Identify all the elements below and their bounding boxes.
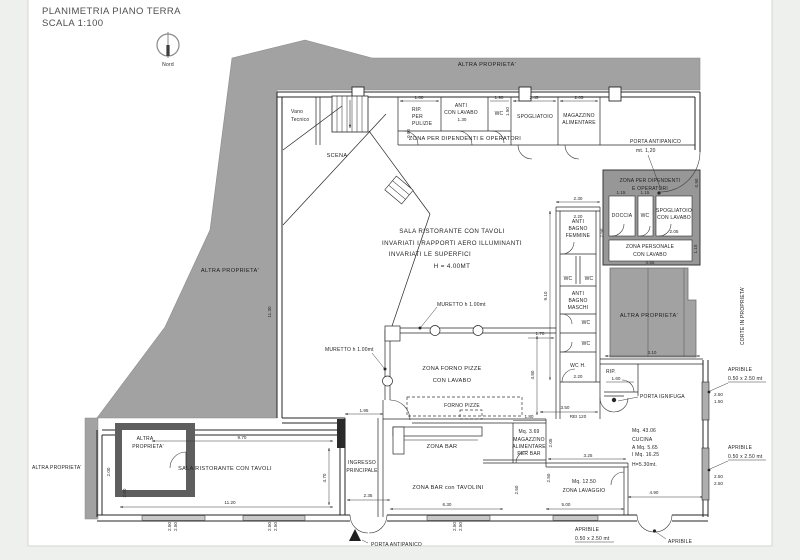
window-right-2	[702, 448, 709, 500]
dim-magbar-h: 2.05	[548, 438, 553, 447]
label-wc-top: WC	[495, 111, 504, 117]
compass-label: Nord	[162, 62, 174, 68]
porta-antipanico-dx-dot	[657, 191, 660, 194]
label-wc-m1: WC	[582, 320, 591, 326]
dim-wc: 1.90	[495, 95, 504, 100]
label-anti-bagno-femmine: ANTI	[572, 219, 584, 225]
label-ingresso: INGRESSO	[348, 460, 376, 466]
label-porta-antipanico-dx: PORTA ANTIPANICO	[630, 139, 681, 145]
label-magbar-3: PER BAR	[517, 451, 541, 457]
dim-w1b: 2.50	[173, 522, 178, 531]
dim-wch: 2.20	[574, 374, 583, 379]
svg-text:0.50 x 2.50 mt: 0.50 x 2.50 mt	[728, 454, 763, 460]
label-spogliatoio: SPOGLIATOIO	[517, 114, 553, 120]
dim-spog: 2.45	[530, 95, 539, 100]
dim-dx2b: 2.50	[714, 481, 723, 486]
label-forno-pizze: FORNO PIZZE	[444, 403, 480, 409]
dim-doccia: 1.15	[617, 190, 626, 195]
dim-dx2a: 2.50	[714, 474, 723, 479]
label-cucina-h: H=5.30mt.	[632, 462, 657, 468]
svg-text:APRIBILE: APRIBILE	[575, 527, 600, 533]
dim-sala-top: 9.70	[238, 435, 247, 440]
dim-box-h: 2.00	[122, 488, 127, 497]
label-vano-tecnico-2: Tecnico	[291, 117, 309, 123]
label-magazzino-alimentare-2: ALIMENTARE	[562, 120, 596, 126]
label-box-altra: ALTRA	[137, 436, 154, 442]
dim-personale-h: 1.15	[693, 244, 698, 253]
dim-forno-h: 4.80	[530, 370, 535, 379]
dim-dx1b: 1.50	[714, 399, 723, 404]
dim-sala-dx: 4.70	[322, 473, 327, 482]
label-altra-left-small: ALTRA PROPRIETA'	[32, 465, 82, 471]
label-sala-centrale-4: H = 4.00MT	[434, 263, 471, 270]
label-blocco-dipendenti-2: E OPERATORI	[632, 186, 668, 192]
label-magazzino-alimentare: MAGAZZINO	[563, 113, 595, 119]
label-cucina-a: A Mq. 5.65	[632, 445, 658, 451]
label-rei-120: REI 120	[570, 414, 587, 419]
dim-muro-sx: 11.30	[267, 306, 272, 318]
label-anti-bagno-femmine-2: BAGNO	[568, 226, 587, 232]
label-magbar-2: ALIMENTARE	[512, 444, 546, 450]
label-zona-personale-2: CON LAVABO	[633, 252, 667, 258]
label-anti-bagno-maschi-2: BAGNO	[568, 298, 587, 304]
floor-plan-drawing: PLANIMETRIA PIANO TERRA SCALA 1:100 Nord…	[0, 0, 800, 560]
label-sala-sx: SALA RISTORANTE CON TAVOLI	[178, 466, 272, 472]
label-cucina-i: I Mq. 16.25	[632, 452, 659, 458]
column-3	[383, 376, 393, 386]
label-altra-right: ALTRA PROPRIETA'	[620, 313, 678, 319]
column-1	[430, 326, 440, 336]
dim-sala-sx-h: 2.00	[106, 467, 111, 476]
dim-sala-bottom: 11.20	[224, 500, 236, 505]
label-box-altra-2: PROPRIETA'	[132, 444, 163, 450]
dim-w2b: 2.50	[273, 522, 278, 531]
dim-w2a: 2.50	[267, 522, 272, 531]
dim-ingresso-porta: 2.35	[364, 493, 373, 498]
label-doccia: DOCCIA	[612, 213, 633, 219]
column-2	[473, 326, 483, 336]
label-magbar: MAGAZZINO	[513, 437, 545, 443]
label-sala-centrale-2: INVARIATI I RAPPORTI AERO ILLUMINANTI	[382, 240, 522, 247]
dim-anti: 1.30	[458, 117, 467, 122]
label-wc-h: WC H.	[570, 363, 586, 369]
label-zona-bar: ZONA BAR	[427, 444, 458, 450]
dim-lav-sx: 2.50	[546, 473, 551, 482]
label-lavaggio-mq: Mq. 12.50	[572, 479, 596, 485]
window-right-1	[702, 382, 709, 420]
label-sala-centrale-3: INVARIATI LE SUPERFICI	[389, 251, 471, 258]
label-zona-personale: ZONA PERSONALE	[626, 244, 675, 250]
dim-w3a: 2.50	[452, 522, 457, 531]
plan-title: PLANIMETRIA PIANO TERRA	[42, 6, 181, 17]
label-apribile-4: APRIBILE	[668, 539, 693, 545]
label-rip2: RIP.	[606, 369, 616, 375]
label-spogliatoio-lavabo-2: CON LAVABO	[657, 215, 691, 221]
dim-magbar-w: 1.80	[525, 414, 534, 419]
area-altra-proprieta-left-strip	[85, 418, 98, 519]
label-sala-centrale: SALA RISTORANTE CON TAVOLI	[399, 228, 505, 235]
label-lavaggio: ZONA LAVAGGIO	[563, 488, 606, 494]
box-altra-proprieta	[115, 423, 195, 497]
label-anti-bagno-maschi: ANTI	[572, 291, 584, 297]
label-spogliatoio-lavabo: SPOGLIATOIO	[656, 208, 692, 214]
floor-plan-page: PLANIMETRIA PIANO TERRA SCALA 1:100 Nord…	[0, 0, 800, 560]
dim-ingresso-top: 1.95	[360, 408, 369, 413]
label-rip-pulizie-2: PER	[412, 114, 423, 120]
dim-rip2: 1.60	[612, 376, 621, 381]
dim-corridoio-h: 0.90	[406, 129, 411, 138]
dim-spog-h: 1.50	[505, 107, 510, 116]
dim-disimp: 1.70	[536, 331, 545, 336]
dim-bagni-1: 2.30	[574, 196, 583, 201]
label-porta-ignifuga: PORTA IGNIFUGA	[640, 394, 685, 400]
label-cucina: CUCINA	[632, 437, 653, 443]
dim-blocco-h: 0.90	[694, 178, 699, 187]
label-vano-tecnico: Vano	[291, 109, 303, 115]
label-wc-m2: WC	[582, 341, 591, 347]
label-zona-forno: ZONA FORNO PIZZE	[422, 366, 481, 372]
label-porta-antipanico-dx-2: mt. 1,20	[636, 148, 656, 154]
label-zona-forno-2: CON LAVABO	[433, 378, 472, 384]
dim-personale: 4.55	[646, 260, 655, 265]
svg-text:APRIBILE: APRIBILE	[728, 367, 753, 373]
dim-tavolini: 6.30	[443, 502, 452, 507]
label-rip-pulizie-3: PULIZIE	[412, 121, 433, 127]
dim-bagni-2: 2.20	[574, 214, 583, 219]
svg-text:APRIBILE: APRIBILE	[728, 445, 753, 451]
label-altra-top: ALTRA PROPRIETA'	[458, 62, 516, 68]
plan-scale: SCALA 1:100	[42, 18, 103, 29]
label-rip-pulizie: RIP.	[412, 107, 422, 113]
dim-lav-bottom: 5.00	[562, 502, 571, 507]
dim-w3b: 2.50	[458, 522, 463, 531]
label-wc-f1: WC	[564, 276, 573, 282]
label-ingresso-2: PRINCIPALE	[346, 468, 378, 474]
label-blocco-dipendenti: ZONA PER DIPENDENTI	[620, 178, 681, 184]
dim-rip: 1.80	[415, 95, 424, 100]
label-wc-f2: WC	[585, 276, 594, 282]
label-anti-bagno-femmine-3: FEMMINE	[566, 233, 591, 239]
dim-mag: 2.05	[575, 95, 584, 100]
label-muretto-2: MURETTO h 1.00mt	[325, 347, 374, 353]
dim-bagni-h: 9.10	[543, 291, 548, 300]
dim-wc-blocco: 1.15	[641, 190, 650, 195]
label-anti-bagno-maschi-3: MASCHI	[568, 305, 589, 311]
dim-dx1a: 2.50	[714, 392, 723, 397]
label-magbar-mq: Mq. 3.69	[518, 429, 539, 435]
label-bar-tavolini: ZONA BAR con TAVOLINI	[412, 485, 483, 491]
dim-cucina-top: 3.10	[648, 350, 657, 355]
stairs	[332, 96, 368, 132]
label-anti-con-lavabo-2: CON LAVABO	[444, 110, 478, 116]
label-muretto-1: MURETTO h 1.00mt	[437, 302, 486, 308]
dim-spog2: 2.05	[670, 229, 679, 234]
label-altra-left: ALTRA PROPRIETA'	[201, 268, 259, 274]
label-anti-con-lavabo: ANTI	[455, 103, 467, 109]
label-wc-blocco: WC	[641, 213, 650, 219]
svg-text:0.50 x 2.50 mt: 0.50 x 2.50 mt	[575, 536, 610, 542]
muretto-1-dot	[419, 327, 422, 330]
label-porta-antipanico-sud: PORTA ANTIPANICO	[371, 542, 422, 548]
dim-w1a: 2.50	[167, 522, 172, 531]
muretto-2-dot	[384, 368, 387, 371]
label-zona-dipendenti-corridoio: ZONA PER DIPENDENTI E OPERATORI	[409, 136, 521, 142]
dim-lav-top: 3.25	[584, 453, 593, 458]
label-corte-proprieta: CORTE IN PROPRIETA'	[740, 287, 746, 345]
dim-rei: 3.50	[561, 405, 570, 410]
label-scena: SCENA	[327, 153, 348, 159]
dim-cucina-bottom: 4.90	[650, 490, 659, 495]
label-cucina-mq: Mq. 43.06	[632, 428, 656, 434]
dim-tavolini-h: 2.50	[514, 485, 519, 494]
svg-text:0.50 x 2.50 mt: 0.50 x 2.50 mt	[728, 376, 763, 382]
